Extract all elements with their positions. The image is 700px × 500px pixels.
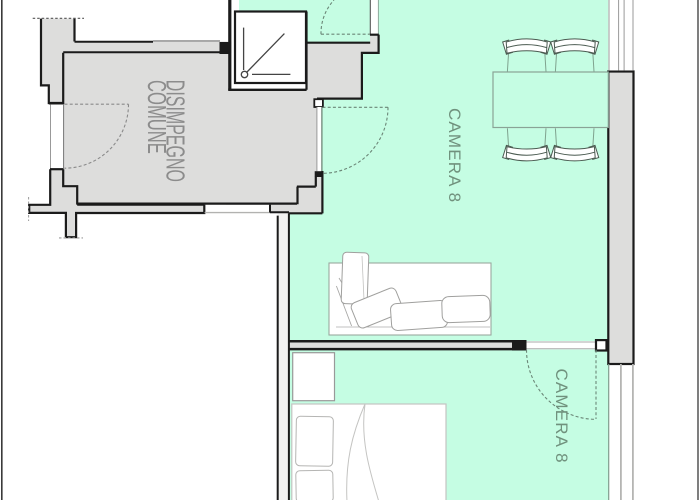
svg-text:CAMERA 8: CAMERA 8 [445,108,464,203]
svg-text:CAMERA 8: CAMERA 8 [552,369,571,464]
svg-text:COMUNE: COMUNE [142,80,172,154]
